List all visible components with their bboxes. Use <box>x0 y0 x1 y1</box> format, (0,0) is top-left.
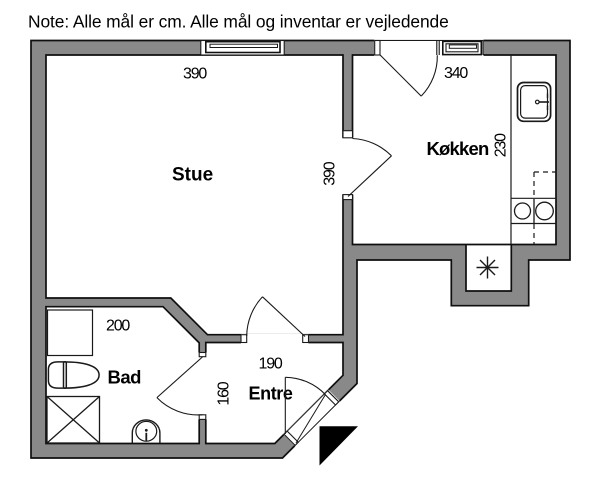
svg-text:340: 340 <box>444 65 468 82</box>
svg-text:160: 160 <box>216 381 233 405</box>
svg-text:230: 230 <box>492 133 509 157</box>
svg-text:Bad: Bad <box>108 367 142 388</box>
svg-text:200: 200 <box>106 318 130 335</box>
svg-text:Note: Alle mål er cm. Alle mål: Note: Alle mål er cm. Alle mål og invent… <box>28 12 449 32</box>
svg-text:Stue: Stue <box>172 165 213 186</box>
svg-text:Entre: Entre <box>249 384 293 404</box>
svg-text:190: 190 <box>259 355 283 372</box>
svg-text:390: 390 <box>322 161 339 185</box>
svg-text:Køkken: Køkken <box>427 138 490 159</box>
svg-text:390: 390 <box>183 66 207 83</box>
